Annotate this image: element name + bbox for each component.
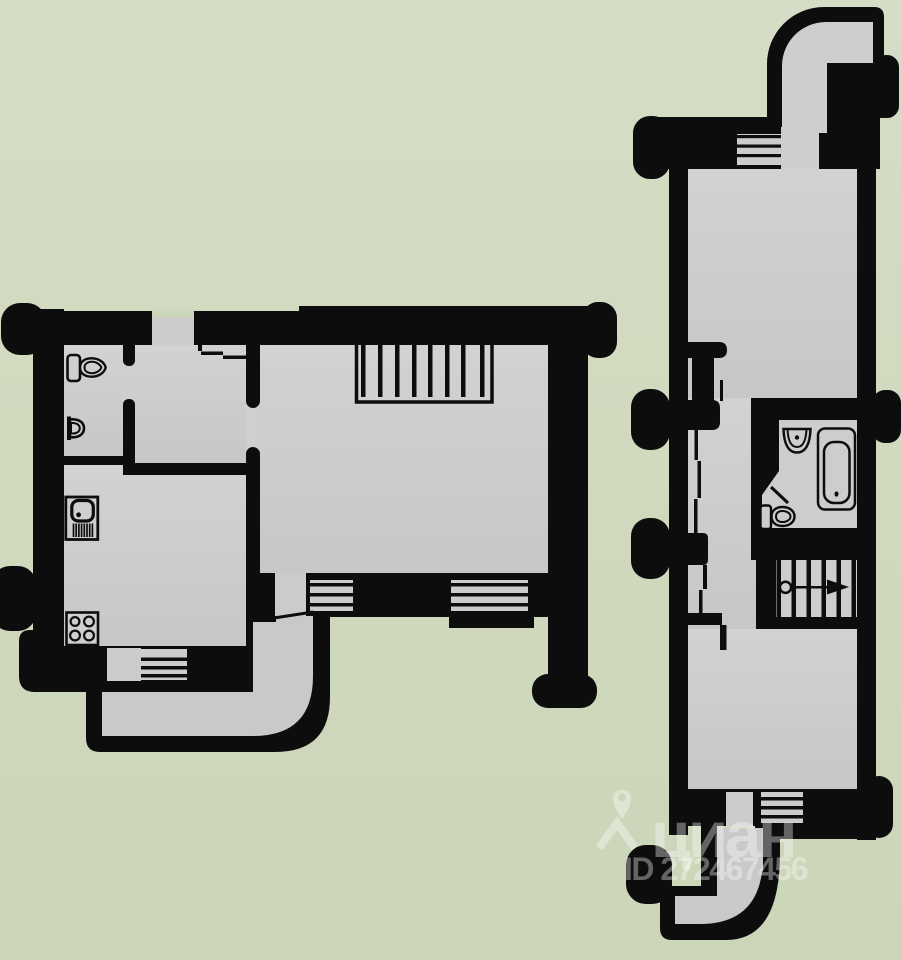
svg-text:ID 272467456: ID 272467456 xyxy=(624,851,808,887)
